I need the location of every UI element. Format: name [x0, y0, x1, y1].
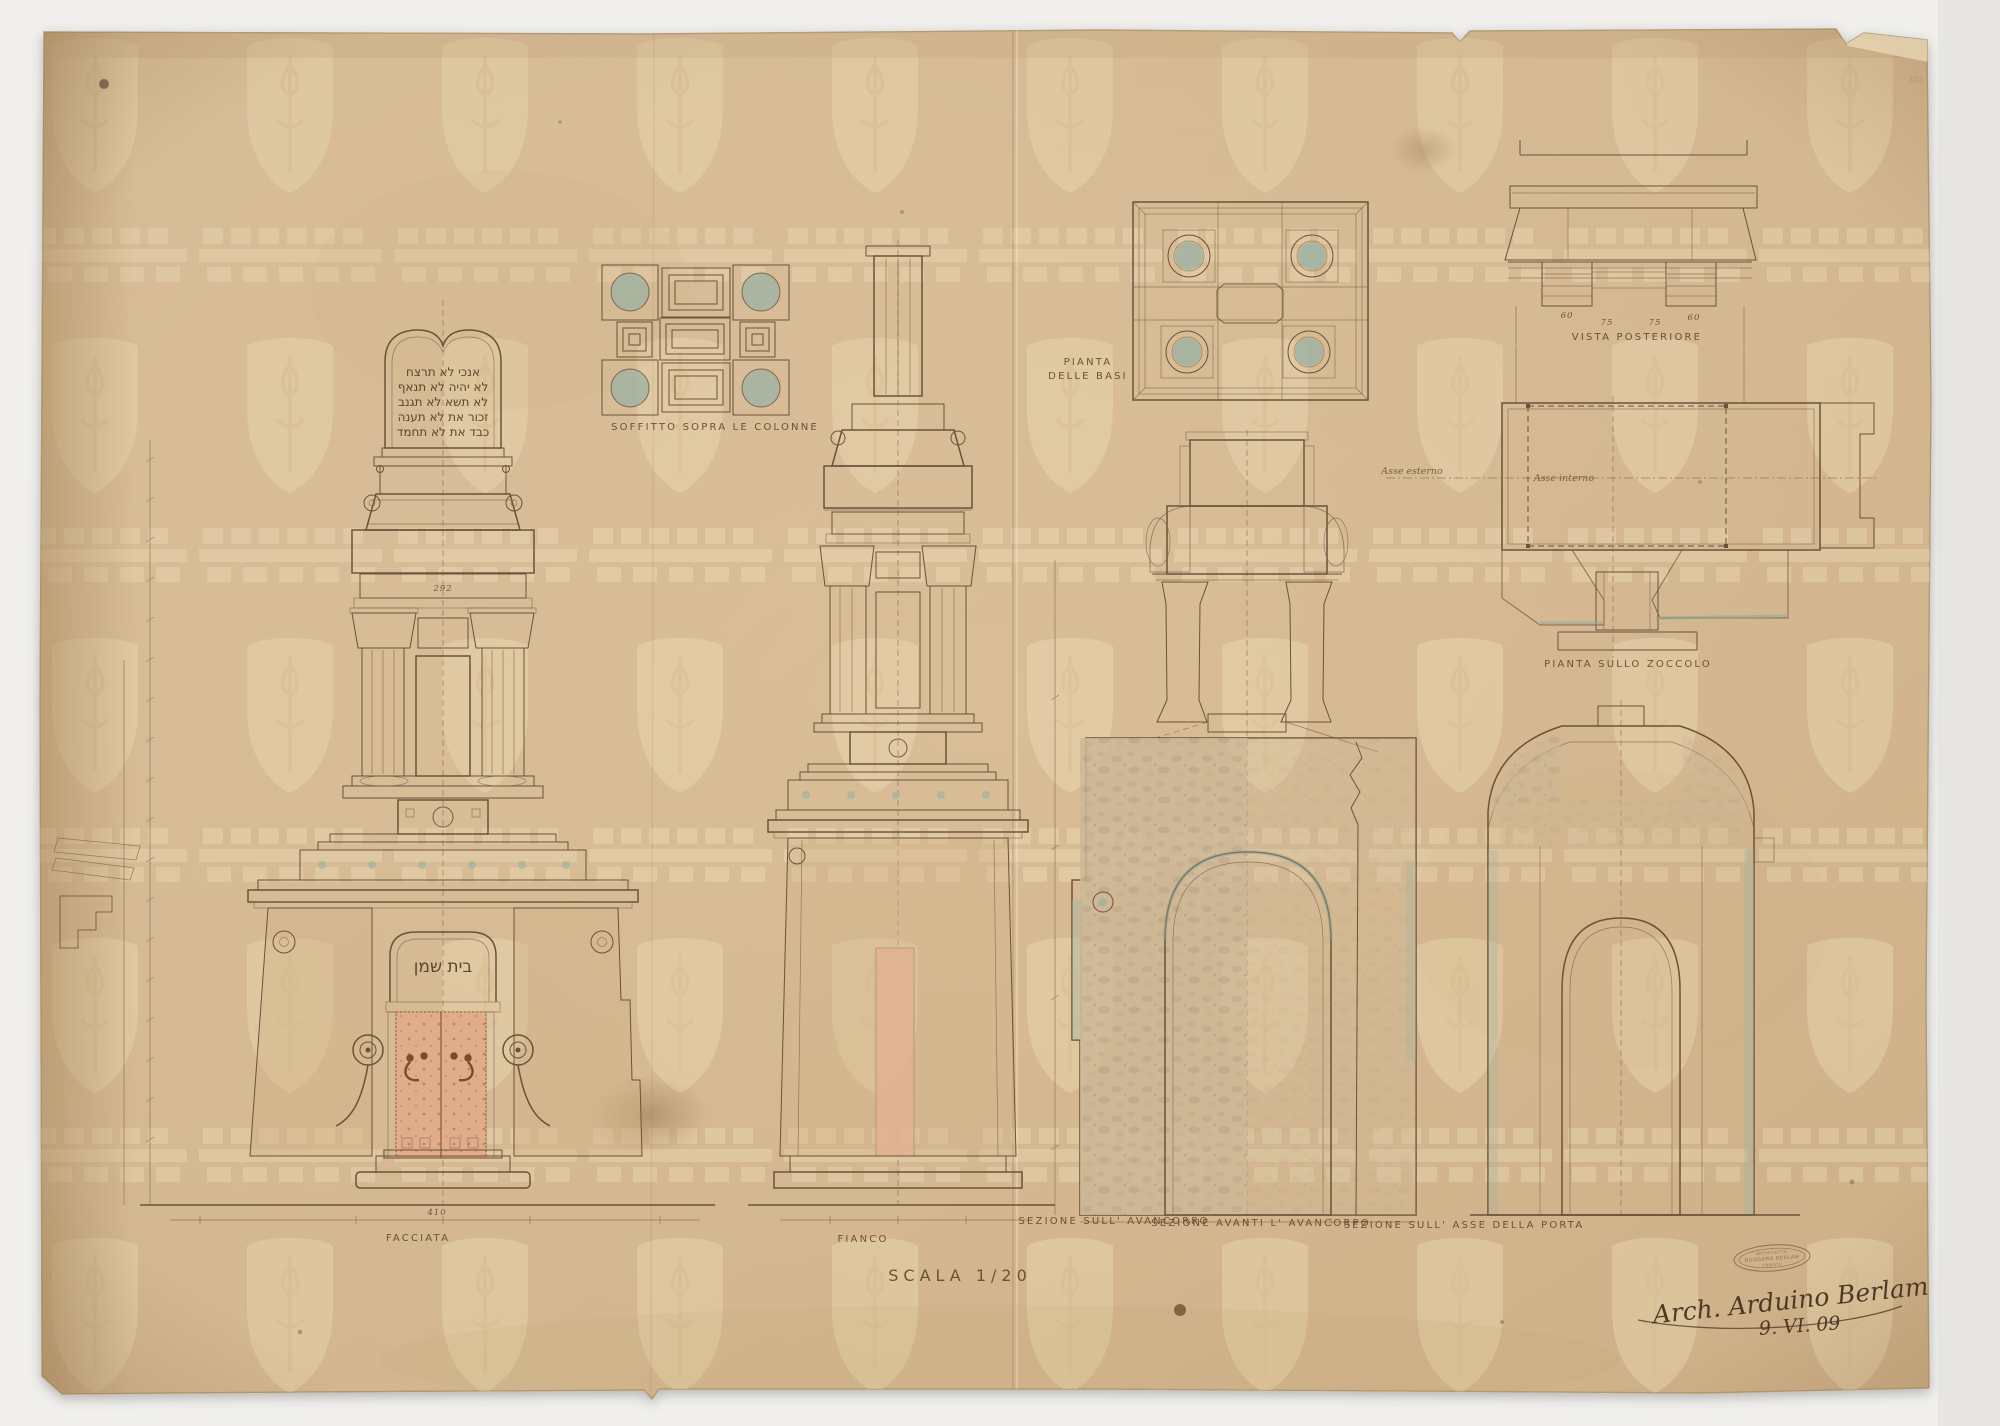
tablet-text-line-3: לא תשא לא תגנב [398, 395, 488, 409]
drawing-canvas: אנכי לא תרצח לא יהיה לא תנאף לא תשא לא ת… [0, 0, 2000, 1426]
label-pianta-basi-1: PIANTA [1064, 357, 1113, 368]
scale-label: SCALA 1/20 [888, 1266, 1032, 1285]
dim-75-left: 75 [1601, 318, 1614, 328]
label-fianco: FIANCO [837, 1234, 888, 1245]
dim-75-right: 75 [1649, 318, 1662, 328]
paper-vignette [40, 28, 1940, 1400]
label-facciata: FACCIATA [386, 1233, 450, 1244]
tablet-text-line-1: אנכי לא תרצח [406, 365, 480, 379]
label-pianta-basi-2: DELLE BASI [1048, 371, 1128, 382]
label-pianta-zoccolo: PIANTA SULLO ZOCCOLO [1544, 659, 1712, 670]
tablet-text-line-5: כבד את לא תחמד [397, 425, 489, 439]
dim-60-left: 60 [1561, 311, 1574, 321]
scan-edge-band [1938, 0, 2000, 1426]
label-vista-posteriore: VISTA POSTERIORE [1572, 332, 1702, 343]
axis-esterno-label: Asse esterno [1380, 466, 1443, 477]
door-lintel-text: בית שמן [414, 957, 473, 977]
axis-interno-label: Asse interno [1533, 473, 1595, 484]
label-soffitto: SOFFITTO SOPRA LE COLONNE [611, 422, 819, 433]
pink-section-strip [876, 948, 914, 1156]
tablet-text-line-2: לא יהיה לא תנאף [398, 380, 489, 394]
tablet-text-line-4: זכור את לא תענה [398, 410, 489, 424]
corner-pencil-mark: 202 [1908, 75, 1923, 84]
label-sezione-avanti: SEZIONE AVANTI L' AVANCORPO [1151, 1218, 1371, 1229]
label-sezione-porta: SEZIONE SULL' ASSE DELLA PORTA [1344, 1220, 1585, 1231]
scanned-drawing-sheet: אנכי לא תרצח לא יהיה לא תנאף לא תשא לא ת… [0, 0, 2000, 1426]
dim-60-right: 60 [1688, 313, 1701, 323]
fascia-dimension: 292 [432, 584, 452, 594]
base-dimension: 410 [426, 1208, 446, 1218]
